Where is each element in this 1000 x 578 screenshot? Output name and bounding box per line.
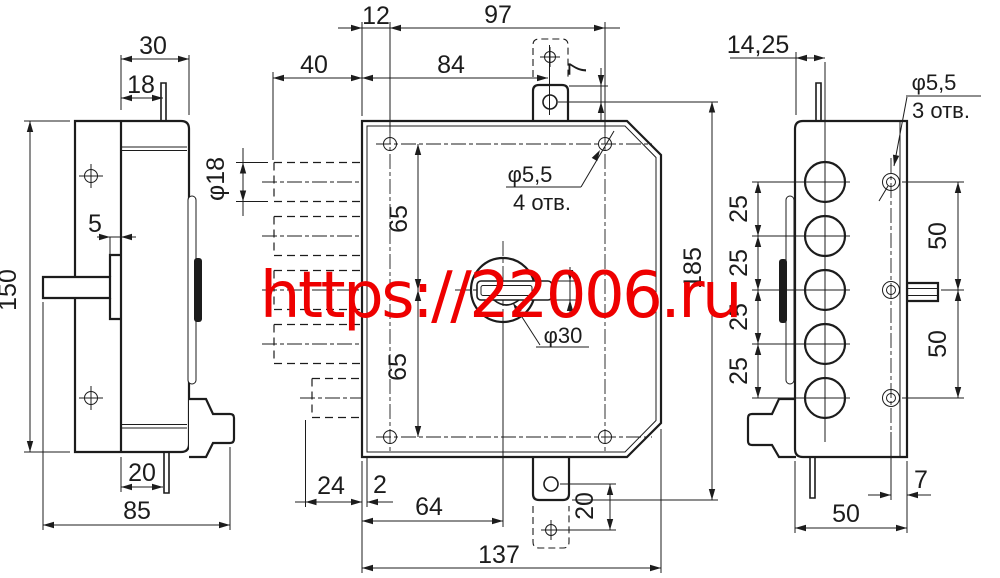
dim-30-label: 30 — [139, 32, 167, 60]
deadbolt-shaft-end — [907, 283, 938, 301]
dim-7b-label: 7 — [914, 466, 928, 494]
watermark: https://22006.ru — [260, 259, 740, 333]
dim-97-label: 97 — [484, 1, 512, 29]
label-4otv-front: 4 отв. — [513, 190, 571, 215]
dim-50c-label: 50 — [832, 500, 860, 528]
dim-24-label: 24 — [317, 472, 345, 500]
latch-side — [189, 399, 234, 457]
dim-18-label: 18 — [127, 71, 155, 99]
dim-dia18-label: φ18 — [202, 157, 230, 201]
dim-5-label: 5 — [88, 210, 102, 238]
dim-85-label: 85 — [123, 497, 151, 525]
dim-64-label: 64 — [415, 493, 443, 521]
dim-7-label: 7 — [564, 62, 592, 76]
dim-84-label: 84 — [437, 51, 465, 79]
dim-137-label: 137 — [478, 541, 520, 569]
left-side-view: 30 18 5 150 20 85 — [0, 32, 234, 530]
latch-right — [748, 399, 796, 457]
right-side-view: 14,25 φ5,5 3 отв. 25 25 25 25 50 50 7 50 — [725, 31, 981, 533]
watermark-text: https://22006.ru — [260, 259, 740, 333]
dim-12-label: 12 — [362, 2, 390, 30]
dim-50a-label: 50 — [924, 222, 952, 250]
dim-25d-label: 25 — [725, 357, 753, 385]
dim-25a-label: 25 — [725, 195, 753, 223]
dim-20b-label: 20 — [571, 492, 599, 520]
label-dia55-right: φ5,5 — [912, 70, 957, 95]
dim-50b-label: 50 — [924, 330, 952, 358]
label-3otv-right: 3 отв. — [912, 98, 970, 123]
dim-2-label: 2 — [373, 471, 387, 499]
lock-drawing-svg: 30 18 5 150 20 85 — [0, 0, 1000, 578]
dim-1425-label: 14,25 — [727, 31, 790, 59]
cylinder-bump-right — [779, 259, 787, 323]
bottom-tab-phantom-hole — [541, 520, 561, 540]
deadbolt-bar-side — [43, 277, 110, 298]
label-dia55-front: φ5,5 — [508, 162, 553, 187]
dim-150-label: 150 — [0, 269, 22, 311]
bottom-pin-right — [810, 457, 815, 498]
top-pin-right — [816, 83, 821, 123]
dim-20-label: 20 — [128, 459, 156, 487]
dim-40-label: 40 — [300, 51, 328, 79]
top-tab — [533, 85, 568, 123]
cylinder-bump — [194, 258, 202, 322]
dim-65a-label: 65 — [385, 205, 413, 233]
dim-65b-label: 65 — [384, 353, 412, 381]
top-pin — [161, 83, 166, 123]
technical-drawing-page: 30 18 5 150 20 85 — [0, 0, 1000, 578]
bottom-pin — [164, 452, 169, 493]
